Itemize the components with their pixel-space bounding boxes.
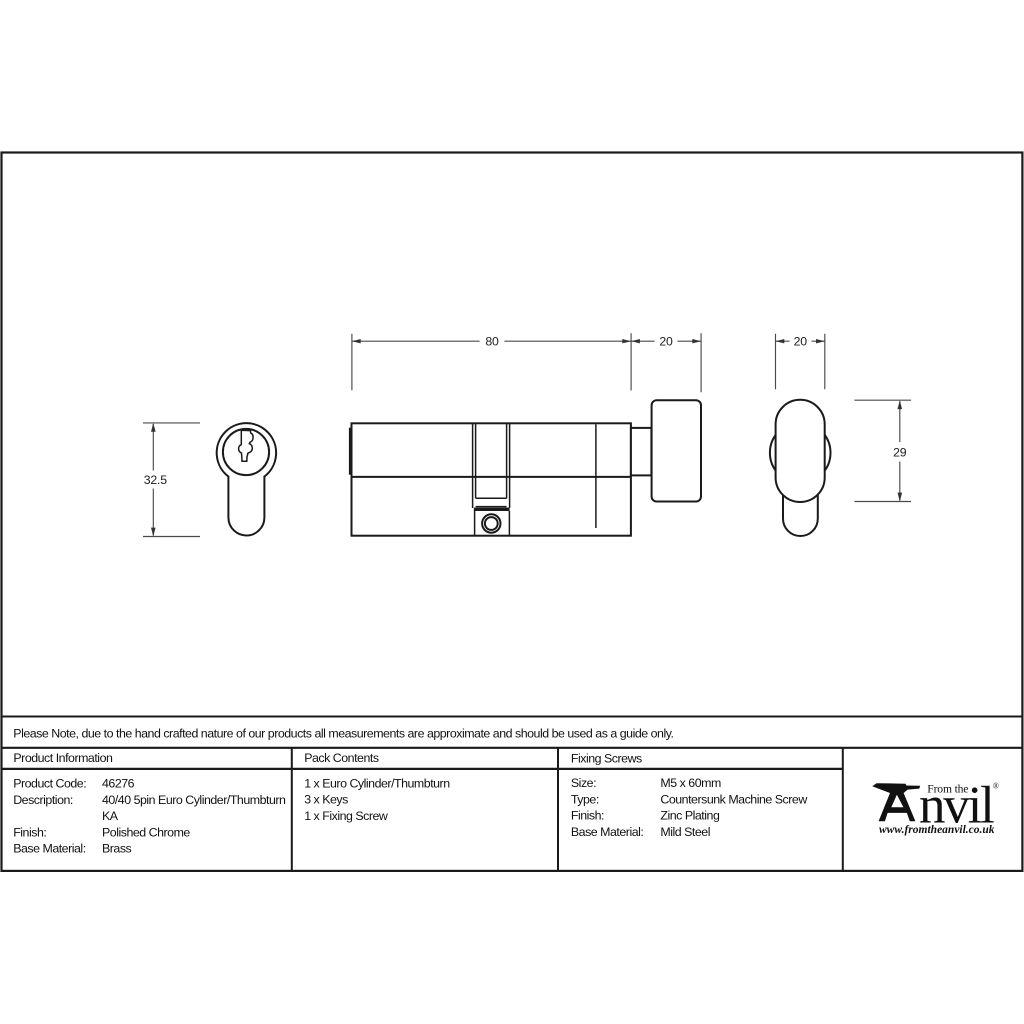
svg-text:3 x Keys: 3 x Keys [304,793,348,807]
svg-text:80: 80 [485,335,499,349]
svg-text:Mild Steel: Mild Steel [660,825,710,839]
svg-text:40/40 5pin Euro Cylinder/Thumb: 40/40 5pin Euro Cylinder/Thumbturn [102,793,286,807]
svg-text:Countersunk Machine Screw: Countersunk Machine Screw [660,792,807,806]
svg-text:Type:: Type: [571,792,599,806]
svg-text:®: ® [993,782,999,791]
svg-text:1 x Fixing Screw: 1 x Fixing Screw [304,809,388,823]
svg-text:Finish:: Finish: [571,809,604,823]
svg-text:KA: KA [102,809,119,823]
svg-text:Base Material:: Base Material: [13,842,86,856]
svg-text:46276: 46276 [102,777,135,791]
svg-text:Product Code:: Product Code: [13,777,86,791]
svg-text:20: 20 [659,335,673,349]
svg-text:Size:: Size: [571,776,596,790]
svg-text:Product Information: Product Information [13,751,113,765]
svg-text:1 x Euro Cylinder/Thumbturn: 1 x Euro Cylinder/Thumbturn [304,776,450,790]
svg-text:Base Material:: Base Material: [571,825,644,839]
svg-text:29: 29 [893,445,907,459]
svg-text:Brass: Brass [102,842,132,856]
svg-text:Description:: Description: [13,793,73,807]
svg-text:Please Note, due to the hand c: Please Note, due to the hand crafted nat… [13,727,673,741]
svg-text:Finish:: Finish: [13,825,46,839]
svg-text:20: 20 [794,335,808,349]
svg-text:M5 x 60mm: M5 x 60mm [660,776,721,790]
svg-text:Fixing Screws: Fixing Screws [571,751,642,765]
svg-text:32.5: 32.5 [144,473,167,487]
svg-text:Polished Chrome: Polished Chrome [102,825,190,839]
svg-text:www.fromtheanvil.co.uk: www.fromtheanvil.co.uk [879,824,995,836]
svg-text:From the: From the [927,783,968,796]
svg-text:Pack Contents: Pack Contents [304,751,379,765]
svg-text:Zinc Plating: Zinc Plating [660,809,720,823]
